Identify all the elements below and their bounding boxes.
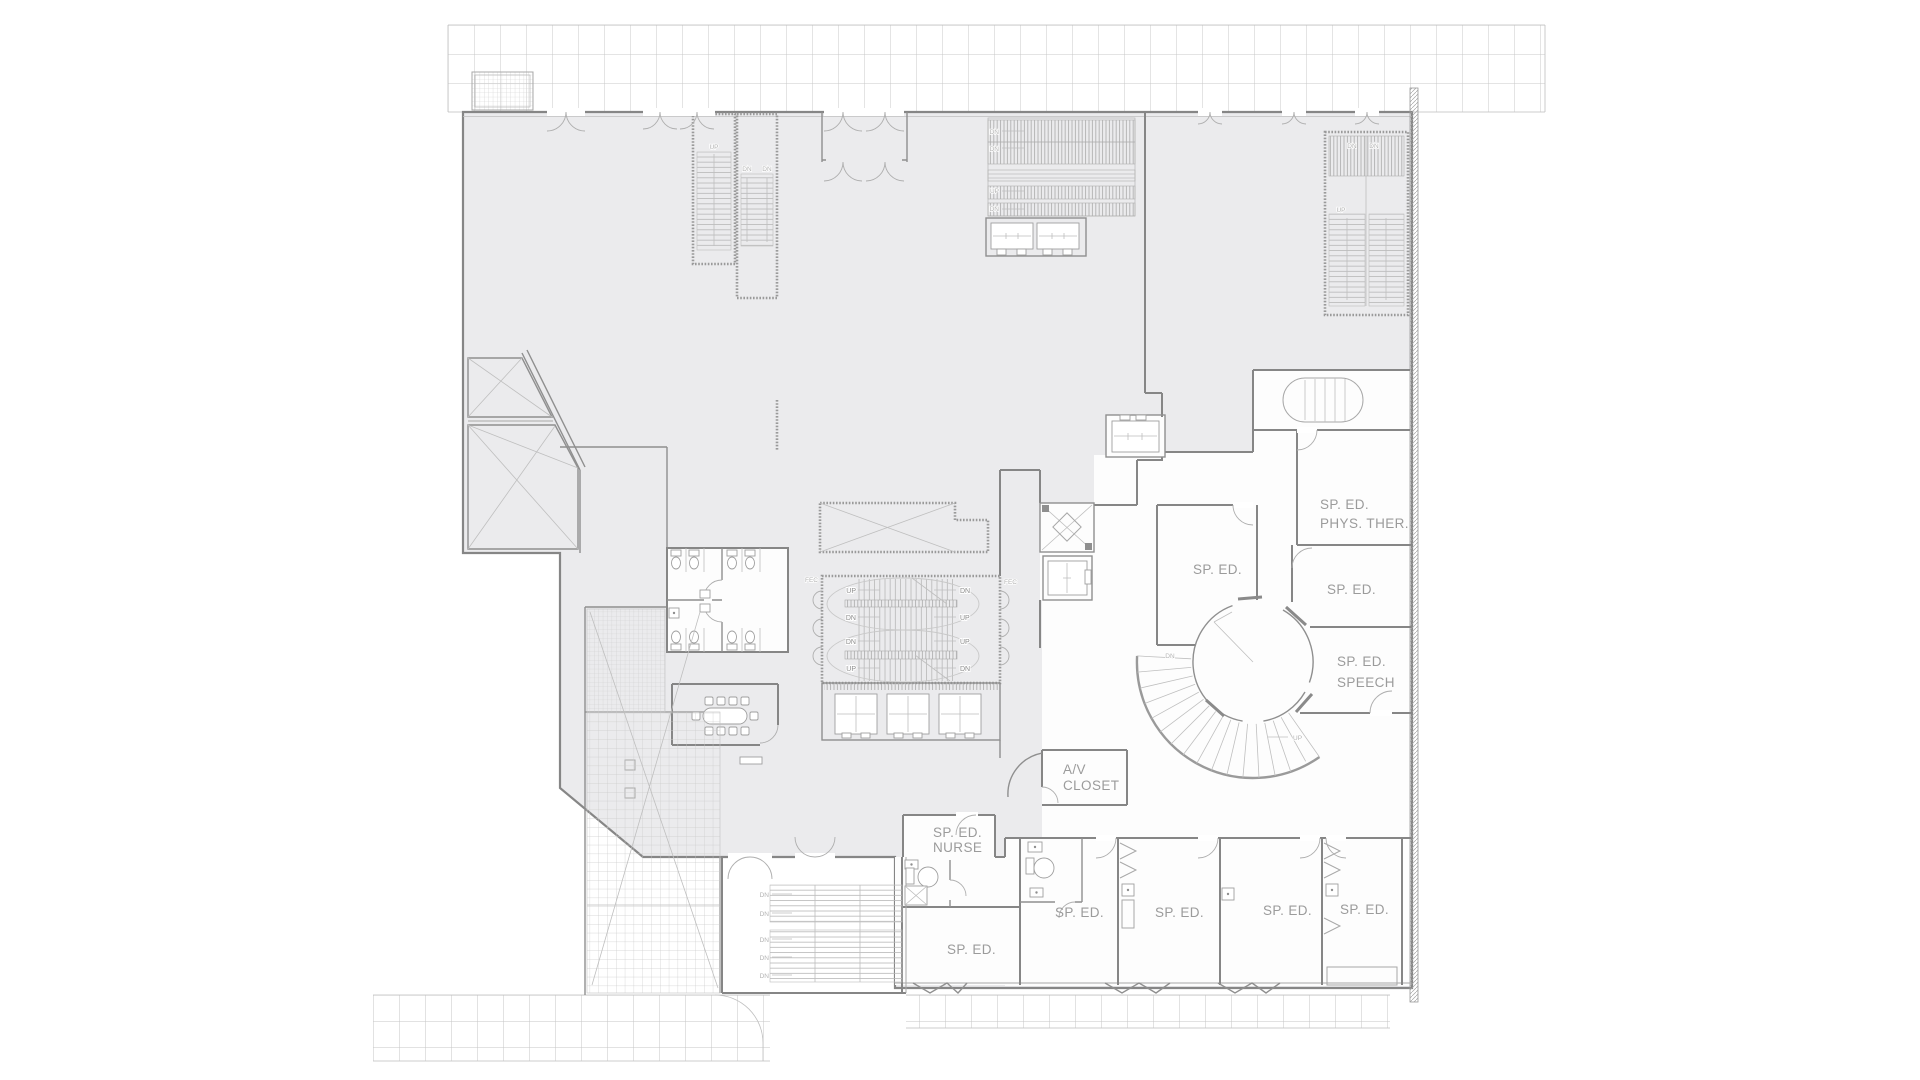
stair-label: UP (846, 666, 856, 673)
label-sp-ed-phys-ther-2: PHYS. THER. (1320, 516, 1409, 531)
equipment-pad (472, 72, 533, 110)
floor-plan-page: UP DN DN DN DN UP DN (0, 0, 1920, 1080)
label-sp-ed-speech-2: SPEECH (1337, 675, 1395, 690)
stair-label: DN (990, 146, 1000, 153)
sidewalk-grid-bottom-left (373, 995, 770, 1061)
stair-label: UP (960, 615, 970, 622)
fec-annotation: FEC (805, 577, 818, 584)
floor-plan-drawing: UP DN DN DN DN UP DN (0, 0, 1920, 1080)
stair-label: DN (760, 892, 770, 899)
sidewalk-grid-bottom-right (906, 995, 1390, 1028)
label-classroom-4: SP. ED. (1340, 902, 1389, 917)
label-classroom-0: SP. ED. (947, 942, 996, 957)
stair-label: DN (760, 937, 770, 944)
exterior-stair-south: DN DN DN DN DN (760, 885, 902, 982)
stair-label: DN (760, 911, 770, 918)
stair-label: UP (990, 188, 999, 195)
stair-label: DN (960, 588, 970, 595)
stair-label: DN (760, 973, 770, 980)
label-sp-ed-speech-1: SP. ED. (1337, 654, 1386, 669)
label-nurse-1: SP. ED. (933, 825, 982, 840)
label-classroom-1: SP. ED. (1055, 905, 1104, 920)
stair-label: UP (709, 144, 718, 151)
label-classroom-3: SP. ED. (1263, 903, 1312, 918)
stair-label: DN (846, 639, 856, 646)
stair-label: UP (846, 588, 856, 595)
stair-label: DN (846, 615, 856, 622)
stair-label: DN (1165, 653, 1175, 660)
stair-label: DN (990, 206, 1000, 213)
elevator-upper-right (1106, 415, 1165, 457)
stair-label: UP (1336, 207, 1345, 214)
stair-label: DN (990, 129, 1000, 136)
stair-label: UP (960, 639, 970, 646)
label-sp-ed-mid: SP. ED. (1327, 582, 1376, 597)
stair-label: DN (762, 166, 772, 173)
stair-label: DN (760, 955, 770, 962)
stair-label: DN (1369, 143, 1379, 150)
stair-label: DN (960, 666, 970, 673)
label-sp-ed-room1: SP. ED. (1193, 562, 1242, 577)
label-nurse-2: NURSE (933, 840, 982, 855)
stair-label: DN (1347, 143, 1357, 150)
stair-label: DN (742, 166, 752, 173)
dumbwaiter-shaft (1043, 556, 1092, 600)
label-av-closet-2: CLOSET (1063, 778, 1119, 793)
label-av-closet-1: A/V (1063, 762, 1086, 777)
fec-annotation: FEC (1004, 579, 1017, 586)
label-classroom-2: SP. ED. (1155, 905, 1204, 920)
stair-label: UP (1293, 735, 1302, 742)
plaza-grid-top (448, 25, 1545, 112)
label-sp-ed-phys-ther-1: SP. ED. (1320, 497, 1369, 512)
